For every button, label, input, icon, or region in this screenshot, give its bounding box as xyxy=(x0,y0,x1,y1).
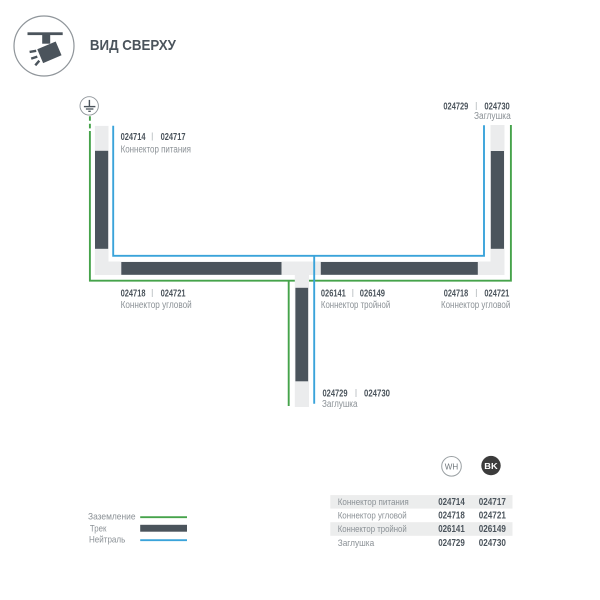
svg-text:Коннектор питания: Коннектор питания xyxy=(338,496,409,507)
svg-text:Коннектор питания: Коннектор питания xyxy=(121,144,191,155)
svg-text:Нейтраль: Нейтраль xyxy=(89,534,125,545)
svg-text:024717: 024717 xyxy=(161,132,186,143)
svg-text:024729: 024729 xyxy=(443,102,468,113)
svg-text:Коннектор тройной: Коннектор тройной xyxy=(321,300,390,311)
svg-text:Коннектор угловой: Коннектор угловой xyxy=(441,300,510,311)
svg-text:024714: 024714 xyxy=(438,497,465,508)
svg-text:ВИД СВЕРХУ: ВИД СВЕРХУ xyxy=(90,37,177,54)
svg-text:024718: 024718 xyxy=(121,289,146,300)
svg-text:024729: 024729 xyxy=(438,538,465,549)
svg-text:024721: 024721 xyxy=(484,289,509,300)
svg-text:Коннектор угловой: Коннектор угловой xyxy=(121,300,192,311)
svg-text:026149: 026149 xyxy=(360,289,386,300)
svg-text:024730: 024730 xyxy=(479,538,507,549)
svg-text:WH: WH xyxy=(445,462,458,471)
svg-text:Заглушка: Заглушка xyxy=(322,399,358,410)
svg-text:024718: 024718 xyxy=(438,511,465,522)
svg-text:024718: 024718 xyxy=(444,289,469,300)
svg-text:024717: 024717 xyxy=(479,497,507,508)
svg-text:Коннектор тройной: Коннектор тройной xyxy=(338,523,407,534)
svg-text:BK: BK xyxy=(484,461,498,471)
svg-text:Заглушка: Заглушка xyxy=(474,111,511,122)
svg-text:026141: 026141 xyxy=(438,524,465,535)
svg-text:Заземление: Заземление xyxy=(88,511,136,522)
svg-text:024721: 024721 xyxy=(161,289,186,300)
svg-text:024730: 024730 xyxy=(364,389,390,400)
svg-text:Заглушка: Заглушка xyxy=(338,537,375,548)
svg-text:Коннектор угловой: Коннектор угловой xyxy=(338,510,407,521)
svg-text:024721: 024721 xyxy=(479,511,507,522)
svg-text:026141: 026141 xyxy=(321,289,346,300)
svg-text:Трек: Трек xyxy=(90,522,107,533)
svg-text:024714: 024714 xyxy=(121,132,146,143)
svg-text:026149: 026149 xyxy=(479,524,507,535)
